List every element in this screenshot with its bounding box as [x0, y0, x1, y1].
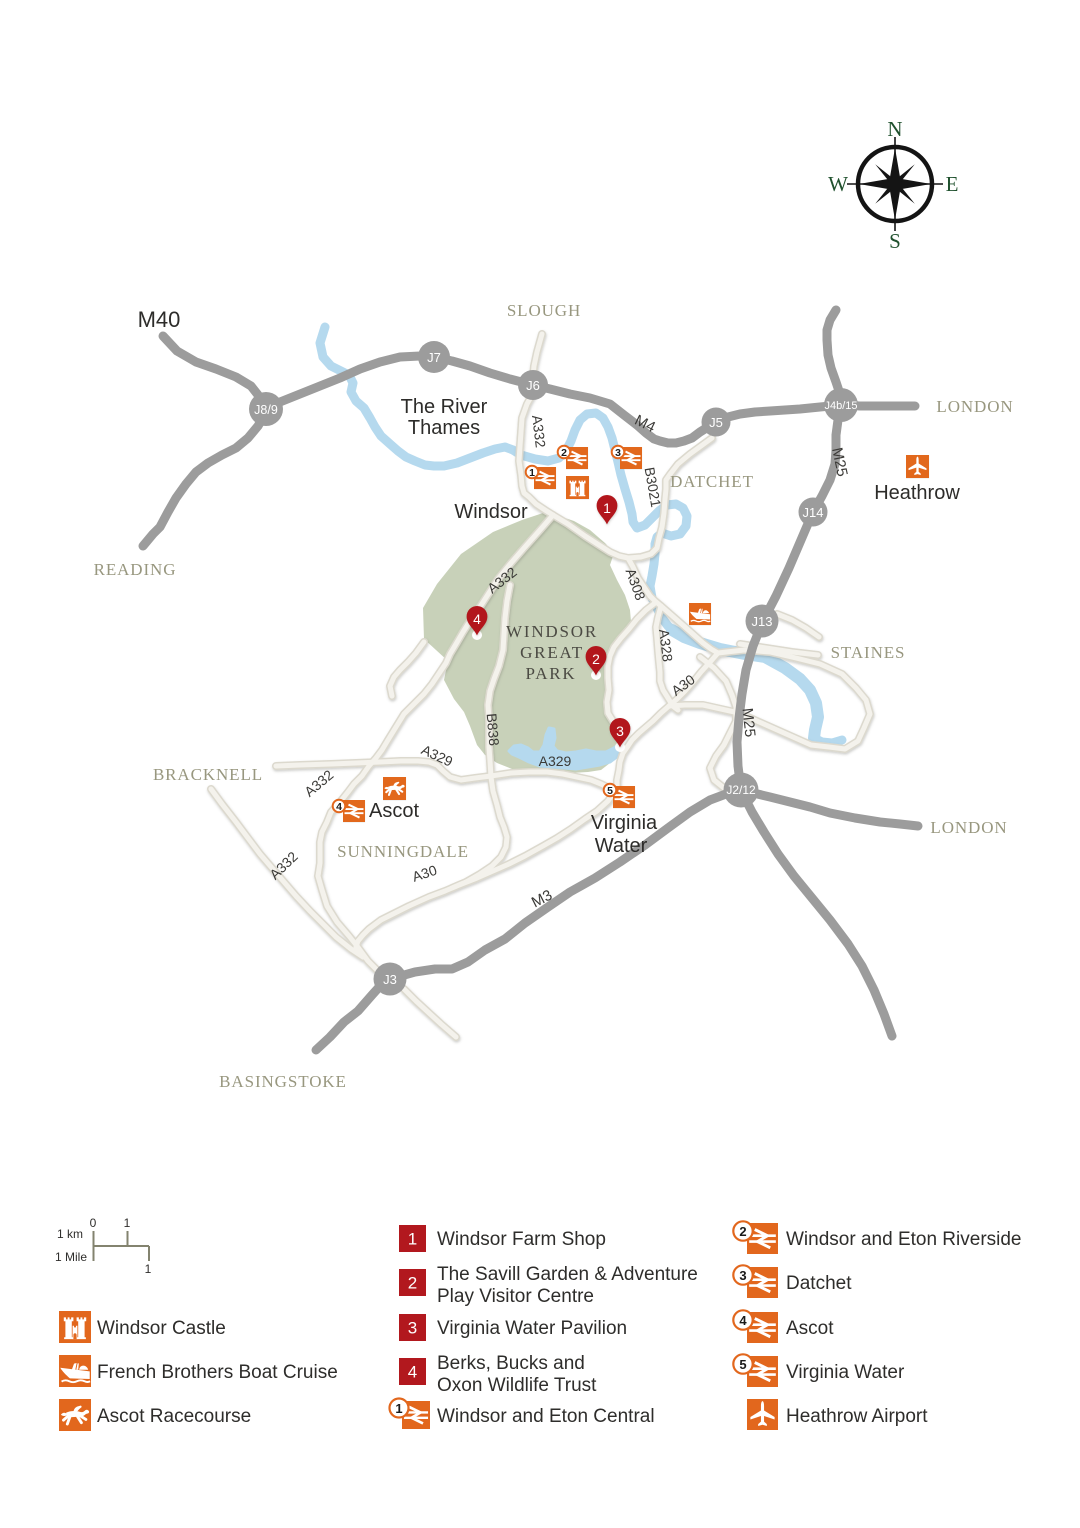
- svg-text:B838: B838: [484, 713, 503, 747]
- svg-text:4: 4: [473, 611, 481, 627]
- svg-text:3: 3: [615, 447, 621, 459]
- svg-text:Thames: Thames: [408, 417, 480, 439]
- svg-text:J8/9: J8/9: [254, 403, 278, 417]
- svg-text:1: 1: [529, 467, 535, 479]
- svg-text:3: 3: [408, 1319, 417, 1338]
- svg-text:1: 1: [395, 1401, 402, 1416]
- svg-text:Heathrow: Heathrow: [874, 482, 960, 504]
- svg-text:Virginia Water: Virginia Water: [786, 1362, 905, 1383]
- svg-text:A30: A30: [410, 862, 439, 885]
- svg-text:M4: M4: [632, 412, 658, 436]
- svg-text:Windsor and Eton Riverside: Windsor and Eton Riverside: [786, 1229, 1022, 1250]
- svg-text:SUNNINGDALE: SUNNINGDALE: [337, 842, 469, 861]
- svg-text:Ascot: Ascot: [369, 800, 419, 822]
- svg-text:WINDSOR: WINDSOR: [506, 622, 598, 641]
- svg-text:4: 4: [739, 1313, 747, 1328]
- svg-text:The Savill Garden & Adventure: The Savill Garden & Adventure: [437, 1264, 698, 1285]
- svg-text:2: 2: [561, 447, 567, 459]
- svg-text:DATCHET: DATCHET: [670, 472, 754, 491]
- svg-text:J3: J3: [383, 972, 397, 987]
- svg-text:PARK: PARK: [526, 664, 577, 683]
- svg-text:Datchet: Datchet: [786, 1273, 852, 1294]
- svg-text:2: 2: [739, 1224, 746, 1239]
- svg-text:E: E: [946, 172, 959, 196]
- svg-text:Windsor: Windsor: [454, 501, 528, 523]
- svg-text:Virginia Water Pavilion: Virginia Water Pavilion: [437, 1318, 627, 1339]
- svg-text:1: 1: [408, 1230, 417, 1249]
- svg-text:S: S: [889, 229, 901, 253]
- svg-text:N: N: [887, 117, 902, 141]
- svg-text:0: 0: [90, 1216, 97, 1230]
- svg-text:5: 5: [607, 785, 613, 797]
- svg-text:2: 2: [408, 1274, 417, 1293]
- svg-text:LONDON: LONDON: [930, 818, 1007, 837]
- svg-text:READING: READING: [94, 560, 177, 579]
- svg-text:M25: M25: [738, 707, 758, 738]
- svg-text:French Brothers Boat Cruise: French Brothers Boat Cruise: [97, 1362, 338, 1383]
- svg-text:A332: A332: [301, 766, 336, 799]
- svg-text:GREAT: GREAT: [520, 643, 584, 662]
- svg-text:Heathrow Airport: Heathrow Airport: [786, 1406, 928, 1427]
- svg-text:W: W: [828, 172, 848, 196]
- svg-text:1: 1: [124, 1216, 131, 1230]
- svg-text:A332: A332: [529, 414, 549, 449]
- svg-text:J7: J7: [427, 350, 441, 365]
- svg-text:5: 5: [739, 1357, 746, 1372]
- svg-text:Berks, Bucks and: Berks, Bucks and: [437, 1353, 585, 1374]
- svg-text:A329: A329: [539, 753, 572, 769]
- svg-text:J2/12: J2/12: [726, 783, 756, 797]
- svg-text:J14: J14: [803, 505, 824, 520]
- svg-text:J6: J6: [526, 378, 540, 393]
- svg-text:1: 1: [145, 1262, 152, 1276]
- svg-text:4: 4: [336, 801, 342, 813]
- svg-text:A308: A308: [623, 566, 649, 602]
- svg-text:BRACKNELL: BRACKNELL: [153, 765, 263, 784]
- svg-text:STAINES: STAINES: [831, 643, 906, 662]
- svg-text:SLOUGH: SLOUGH: [507, 301, 581, 320]
- svg-text:Water: Water: [595, 835, 648, 857]
- svg-text:Ascot Racecourse: Ascot Racecourse: [97, 1406, 251, 1427]
- svg-text:The River: The River: [401, 396, 488, 418]
- svg-text:1: 1: [603, 500, 611, 516]
- svg-text:1 Mile: 1 Mile: [55, 1250, 87, 1264]
- svg-text:Ascot: Ascot: [786, 1318, 834, 1339]
- svg-text:LONDON: LONDON: [936, 397, 1013, 416]
- svg-text:Virginia: Virginia: [591, 812, 658, 834]
- svg-text:J4b/15: J4b/15: [824, 400, 857, 412]
- svg-text:Oxon Wildlife Trust: Oxon Wildlife Trust: [437, 1375, 597, 1396]
- svg-text:1 km: 1 km: [57, 1227, 83, 1241]
- svg-text:3: 3: [616, 723, 624, 739]
- svg-text:3: 3: [739, 1268, 746, 1283]
- svg-text:2: 2: [592, 651, 600, 667]
- svg-text:M40: M40: [138, 307, 181, 332]
- svg-text:Play Visitor Centre: Play Visitor Centre: [437, 1286, 594, 1307]
- svg-text:Windsor Castle: Windsor Castle: [97, 1318, 226, 1339]
- svg-text:4: 4: [408, 1363, 417, 1382]
- svg-text:Windsor Farm Shop: Windsor Farm Shop: [437, 1229, 606, 1250]
- svg-text:B3021: B3021: [642, 466, 665, 509]
- svg-text:Windsor and Eton Central: Windsor and Eton Central: [437, 1406, 655, 1427]
- svg-text:J13: J13: [752, 614, 773, 629]
- svg-text:J5: J5: [709, 415, 723, 430]
- svg-text:BASINGSTOKE: BASINGSTOKE: [219, 1072, 347, 1091]
